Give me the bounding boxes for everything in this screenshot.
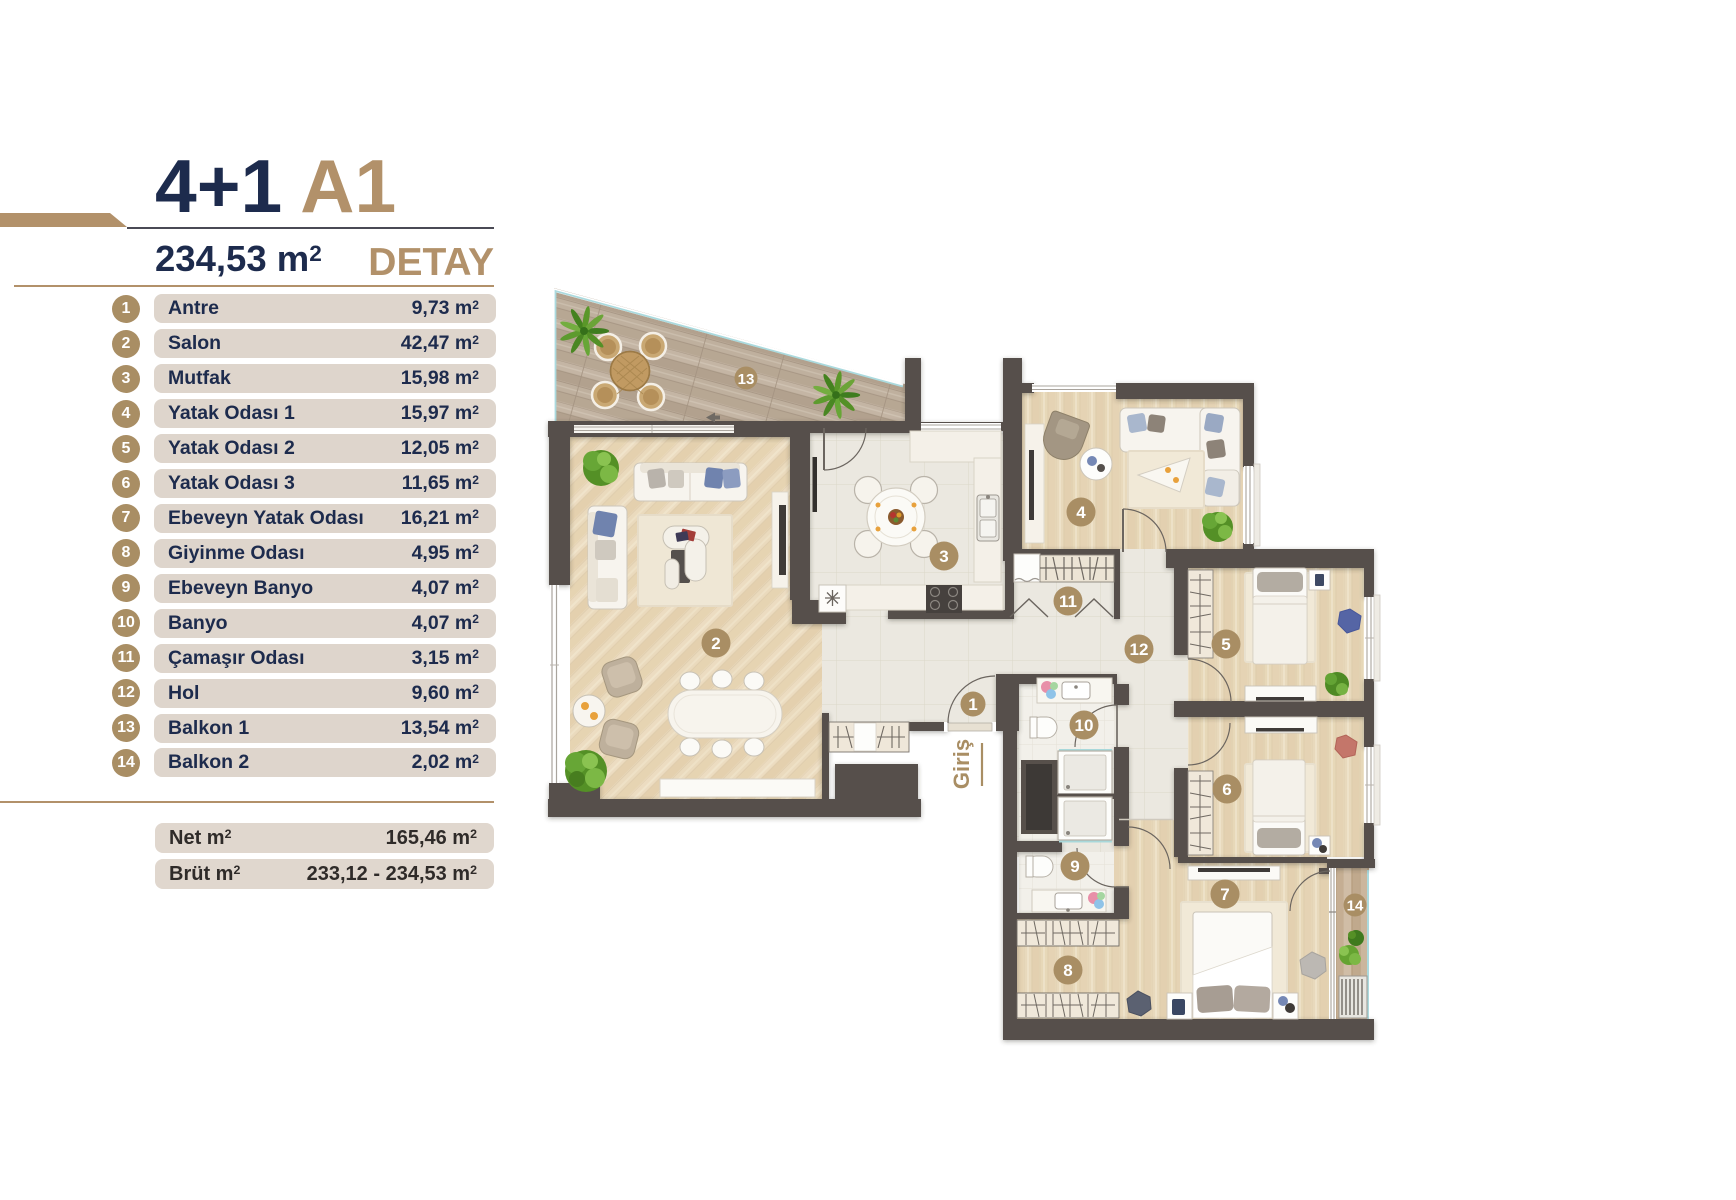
svg-text:6: 6 <box>1222 780 1231 799</box>
svg-text:Giriş: Giriş <box>949 739 974 789</box>
svg-text:3: 3 <box>939 547 948 566</box>
svg-text:4: 4 <box>1076 503 1086 522</box>
svg-text:7: 7 <box>1220 885 1229 904</box>
svg-text:5: 5 <box>1221 635 1230 654</box>
svg-text:10: 10 <box>1075 716 1094 735</box>
svg-text:14: 14 <box>1347 898 1364 915</box>
svg-text:2: 2 <box>711 634 720 653</box>
svg-text:12: 12 <box>1130 640 1149 659</box>
svg-text:9: 9 <box>1070 857 1079 876</box>
svg-text:13: 13 <box>738 371 755 388</box>
svg-text:8: 8 <box>1063 961 1072 980</box>
svg-text:1: 1 <box>968 695 977 714</box>
svg-text:11: 11 <box>1059 592 1077 611</box>
